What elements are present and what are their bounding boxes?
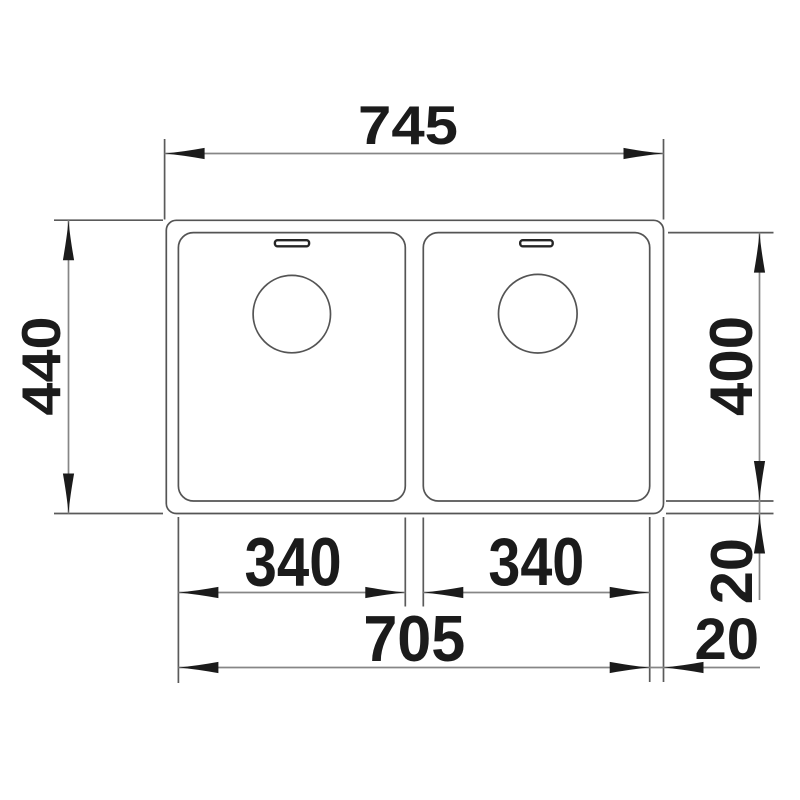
svg-text:20: 20 xyxy=(698,538,765,604)
svg-text:745: 745 xyxy=(358,95,458,156)
svg-text:400: 400 xyxy=(698,316,765,416)
svg-text:340: 340 xyxy=(488,525,584,601)
svg-text:340: 340 xyxy=(245,524,342,601)
svg-text:705: 705 xyxy=(363,603,465,675)
svg-text:440: 440 xyxy=(11,316,72,415)
svg-text:20: 20 xyxy=(694,607,759,672)
